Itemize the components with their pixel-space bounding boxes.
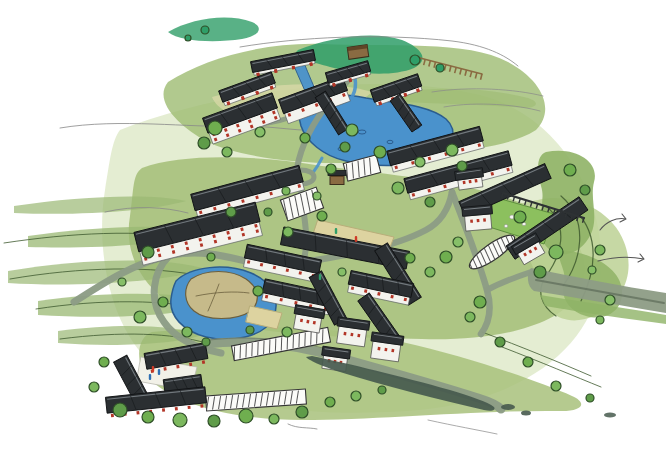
- tree: [208, 415, 220, 427]
- window: [162, 408, 165, 411]
- tree: [282, 187, 290, 195]
- window: [292, 66, 295, 70]
- tree: [474, 296, 486, 308]
- tree: [246, 326, 254, 334]
- tree: [296, 406, 308, 418]
- tree: [586, 394, 594, 402]
- window: [189, 363, 192, 367]
- tree: [325, 397, 335, 407]
- person-figure: [335, 228, 337, 234]
- tree: [142, 246, 154, 258]
- window: [313, 321, 316, 325]
- tree: [113, 403, 127, 417]
- tree: [596, 316, 604, 324]
- tree: [588, 266, 596, 274]
- house-building: [462, 205, 494, 232]
- washes-stroke: [168, 17, 259, 41]
- tree: [551, 381, 561, 391]
- window: [377, 347, 380, 351]
- tree: [89, 382, 99, 392]
- tree: [346, 124, 358, 136]
- tree: [564, 164, 576, 176]
- window: [391, 349, 394, 353]
- tree: [605, 295, 615, 305]
- tree: [198, 137, 210, 149]
- tree: [415, 157, 425, 167]
- tree: [392, 182, 404, 194]
- contours-stroke: [288, 424, 317, 429]
- house-building: [335, 317, 370, 347]
- tree: [283, 227, 293, 237]
- tree: [436, 64, 444, 72]
- house-wall: [465, 214, 492, 231]
- tree: [253, 286, 263, 296]
- sketch-svg: [0, 0, 666, 471]
- tree: [580, 185, 590, 195]
- window: [200, 404, 203, 407]
- tree: [338, 268, 346, 276]
- tree: [446, 144, 458, 156]
- tree: [208, 121, 222, 135]
- tree: [410, 55, 420, 65]
- lawn-furniture-mark: [504, 225, 508, 228]
- pavilion: [347, 45, 368, 60]
- shadow-dabs-mark: [501, 404, 515, 410]
- house-building: [455, 168, 485, 191]
- tree: [514, 211, 526, 223]
- tree: [207, 253, 215, 261]
- tree: [326, 164, 336, 174]
- tree: [142, 411, 154, 423]
- tree: [374, 146, 386, 158]
- tree: [340, 142, 350, 152]
- window: [306, 320, 309, 324]
- window: [300, 319, 303, 323]
- tree: [425, 267, 435, 277]
- window: [202, 360, 205, 364]
- person-figure: [149, 374, 151, 380]
- tree: [405, 253, 415, 263]
- window: [475, 179, 478, 183]
- tree: [457, 161, 467, 171]
- window: [274, 69, 277, 73]
- window: [256, 72, 259, 76]
- tree: [118, 278, 126, 286]
- tree: [300, 133, 310, 143]
- person-figure: [319, 274, 321, 280]
- window: [309, 62, 312, 66]
- tree: [182, 327, 192, 337]
- tree: [264, 208, 272, 216]
- tree: [351, 391, 361, 401]
- campus-masterplan-sketch: [0, 0, 666, 471]
- window: [469, 180, 472, 184]
- tree: [317, 211, 327, 221]
- tree: [313, 192, 321, 200]
- shadow-dabs-mark: [521, 411, 531, 416]
- tree: [202, 338, 210, 346]
- window: [477, 219, 480, 222]
- contours-stroke: [428, 420, 497, 434]
- tree: [425, 197, 435, 207]
- house-building: [369, 332, 404, 362]
- tree: [282, 327, 292, 337]
- tree: [378, 386, 386, 394]
- window: [350, 333, 353, 337]
- tree: [185, 35, 191, 41]
- window: [111, 414, 114, 417]
- window: [343, 332, 346, 336]
- tree: [523, 357, 533, 367]
- tree: [239, 409, 253, 423]
- window: [175, 407, 178, 410]
- window: [163, 367, 166, 371]
- tree: [549, 245, 563, 259]
- tree: [495, 337, 505, 347]
- person-figure: [158, 369, 160, 375]
- tree: [158, 297, 168, 307]
- shadow-dabs-mark: [604, 413, 616, 418]
- window: [384, 348, 387, 352]
- tree: [534, 266, 546, 278]
- tree: [99, 357, 109, 367]
- tree: [222, 147, 232, 157]
- tree: [453, 237, 463, 247]
- window: [357, 334, 360, 338]
- window: [188, 406, 191, 409]
- tree: [269, 414, 279, 424]
- tree: [134, 311, 146, 323]
- tree: [465, 312, 475, 322]
- tree: [255, 127, 265, 137]
- person-figure: [152, 366, 154, 372]
- window: [483, 218, 486, 221]
- tree: [226, 207, 236, 217]
- person-figure: [355, 236, 357, 242]
- window: [463, 181, 466, 185]
- tree: [440, 251, 452, 263]
- window: [176, 365, 179, 369]
- window: [470, 219, 473, 222]
- window: [136, 411, 139, 414]
- tree: [173, 413, 187, 427]
- tree: [201, 26, 209, 34]
- tree: [595, 245, 605, 255]
